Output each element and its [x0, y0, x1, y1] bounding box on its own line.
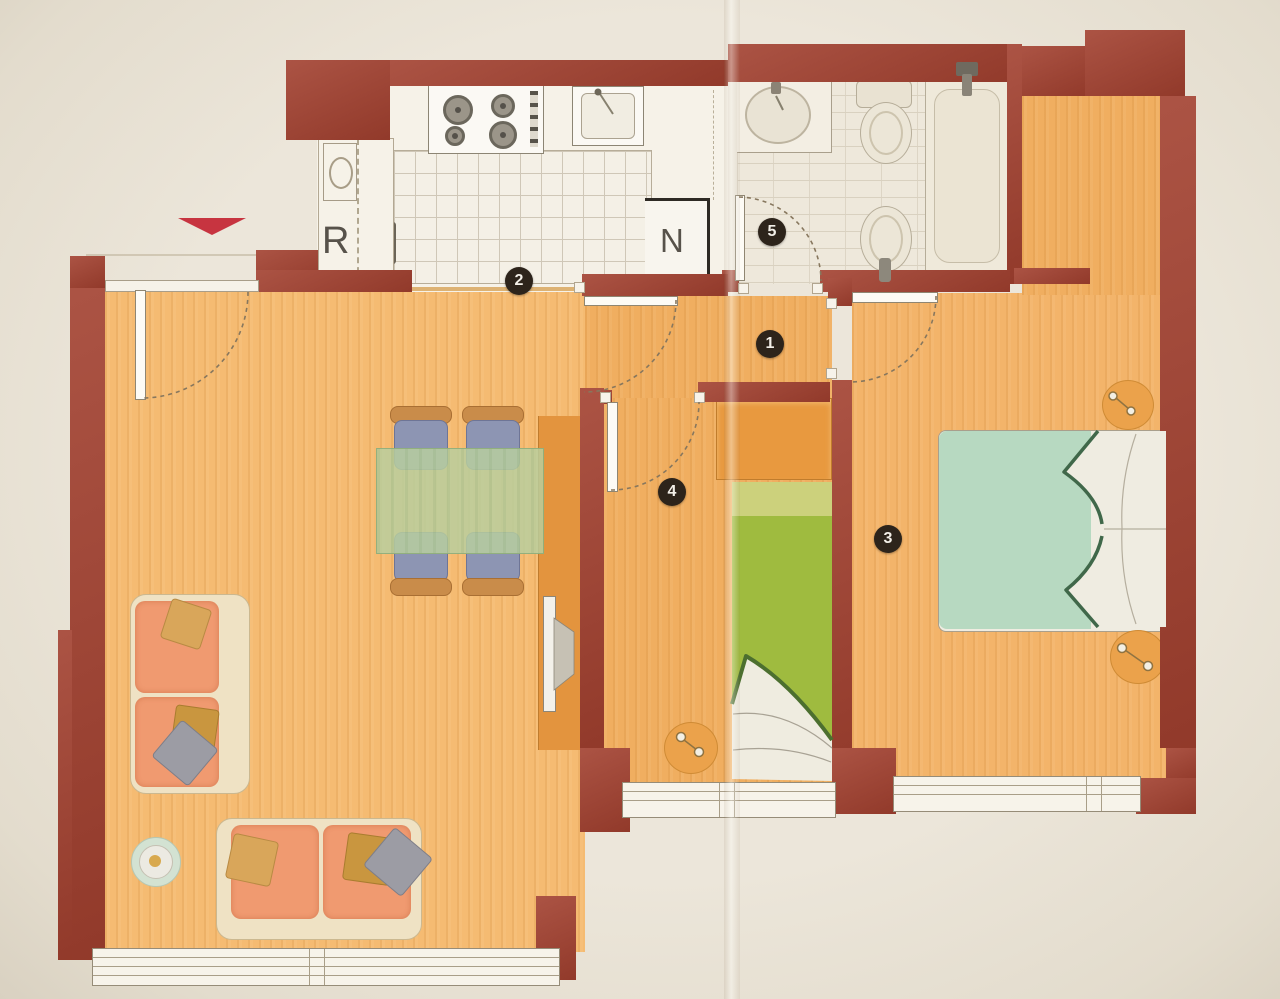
bathtub [925, 80, 1009, 282]
wall [1014, 268, 1090, 284]
wall [286, 60, 390, 140]
window-mullion [1086, 777, 1102, 811]
entrance-door-leaf [135, 290, 146, 400]
wall [1166, 748, 1196, 782]
room-marker-2: 2 [505, 267, 533, 295]
window-frame-line [93, 966, 559, 967]
wall [70, 256, 105, 288]
appliance-drum-icon [329, 157, 353, 189]
stove-burner-icon [491, 94, 515, 118]
door-jamb [812, 283, 823, 294]
wall [582, 274, 728, 296]
sofa [130, 594, 250, 794]
room-marker-4: 4 [658, 478, 686, 506]
wall [832, 748, 896, 814]
wall [1007, 44, 1022, 284]
nightstand [664, 722, 718, 774]
nightstand [1110, 630, 1166, 684]
bidet-faucet-icon [879, 258, 891, 282]
window-frame-line [894, 785, 1140, 786]
kitchen-tall-unit-line [713, 90, 715, 200]
sink-basin [581, 93, 635, 139]
door-jamb [826, 368, 837, 379]
wall [390, 60, 728, 86]
wall [58, 630, 72, 960]
washbasin [745, 86, 811, 144]
bathroom-door-leaf [735, 195, 745, 281]
wall [832, 380, 852, 792]
window-mullion [309, 949, 325, 985]
kitchen-counter [393, 150, 652, 284]
living-room-window [92, 948, 560, 986]
bathtub-faucet-icon [962, 74, 972, 96]
kitchen-living-threshold [412, 287, 582, 291]
bedroom-3-window [893, 776, 1141, 812]
door-jamb [694, 392, 705, 403]
tv-panel [543, 596, 556, 712]
window-mullion [719, 783, 735, 817]
kitchen-sink [572, 86, 644, 146]
wall [256, 270, 412, 292]
stove [428, 84, 544, 154]
wall [1085, 30, 1185, 96]
side-table [131, 837, 181, 887]
sofa-pillow [225, 833, 280, 888]
label-n: N [660, 222, 684, 260]
double-bed [938, 430, 1170, 632]
entrance-arrow-icon [178, 218, 246, 235]
door-jamb [826, 298, 837, 309]
cabinet-divider-line [357, 139, 359, 283]
stove-burner-icon [445, 126, 465, 146]
window-frame-line [93, 957, 559, 958]
basin-faucet-icon [771, 82, 781, 94]
wall [698, 382, 830, 402]
wall [1022, 46, 1090, 96]
room-marker-1: 1 [756, 330, 784, 358]
stove-control-strip [530, 91, 538, 147]
appliance-box [323, 143, 357, 201]
room-marker-3: 3 [874, 525, 902, 553]
hall-door-leaf [584, 296, 678, 306]
window-frame-line [93, 975, 559, 976]
entrance-threshold [86, 254, 262, 256]
wall [580, 388, 604, 750]
wall [1136, 778, 1196, 814]
single-bed-cover [732, 516, 832, 746]
window-frame-line [894, 794, 1140, 795]
entrance-sill [105, 280, 259, 292]
bedroom-4-window [622, 782, 836, 818]
sofa [216, 818, 422, 940]
wall [70, 286, 105, 960]
washbasin-counter [737, 78, 832, 153]
stove-burner-icon [443, 95, 473, 125]
chair-back [462, 578, 524, 596]
floor-plan-page: 1 2 3 4 5 R N [0, 0, 1280, 999]
side-table-center [149, 855, 161, 867]
door-jamb [574, 282, 585, 293]
wall [1160, 96, 1196, 748]
door-jamb [738, 283, 749, 294]
bedroom-4-door-leaf [607, 402, 618, 492]
wardrobe [716, 398, 832, 480]
stove-burner-icon [489, 121, 517, 149]
dining-table [376, 448, 544, 554]
room-marker-5: 5 [758, 218, 786, 246]
bedroom-3-door-leaf [852, 292, 938, 303]
bidet-inner [869, 215, 903, 263]
double-bed-cover [939, 431, 1091, 629]
bathtub-inner [934, 89, 1000, 263]
toilet-bowl [860, 102, 912, 164]
closet-alcove-floor [1022, 95, 1163, 295]
toilet-bowl-inner [869, 111, 903, 155]
chair-back [390, 578, 452, 596]
nightstand [1102, 380, 1154, 430]
label-r: R [322, 220, 349, 263]
